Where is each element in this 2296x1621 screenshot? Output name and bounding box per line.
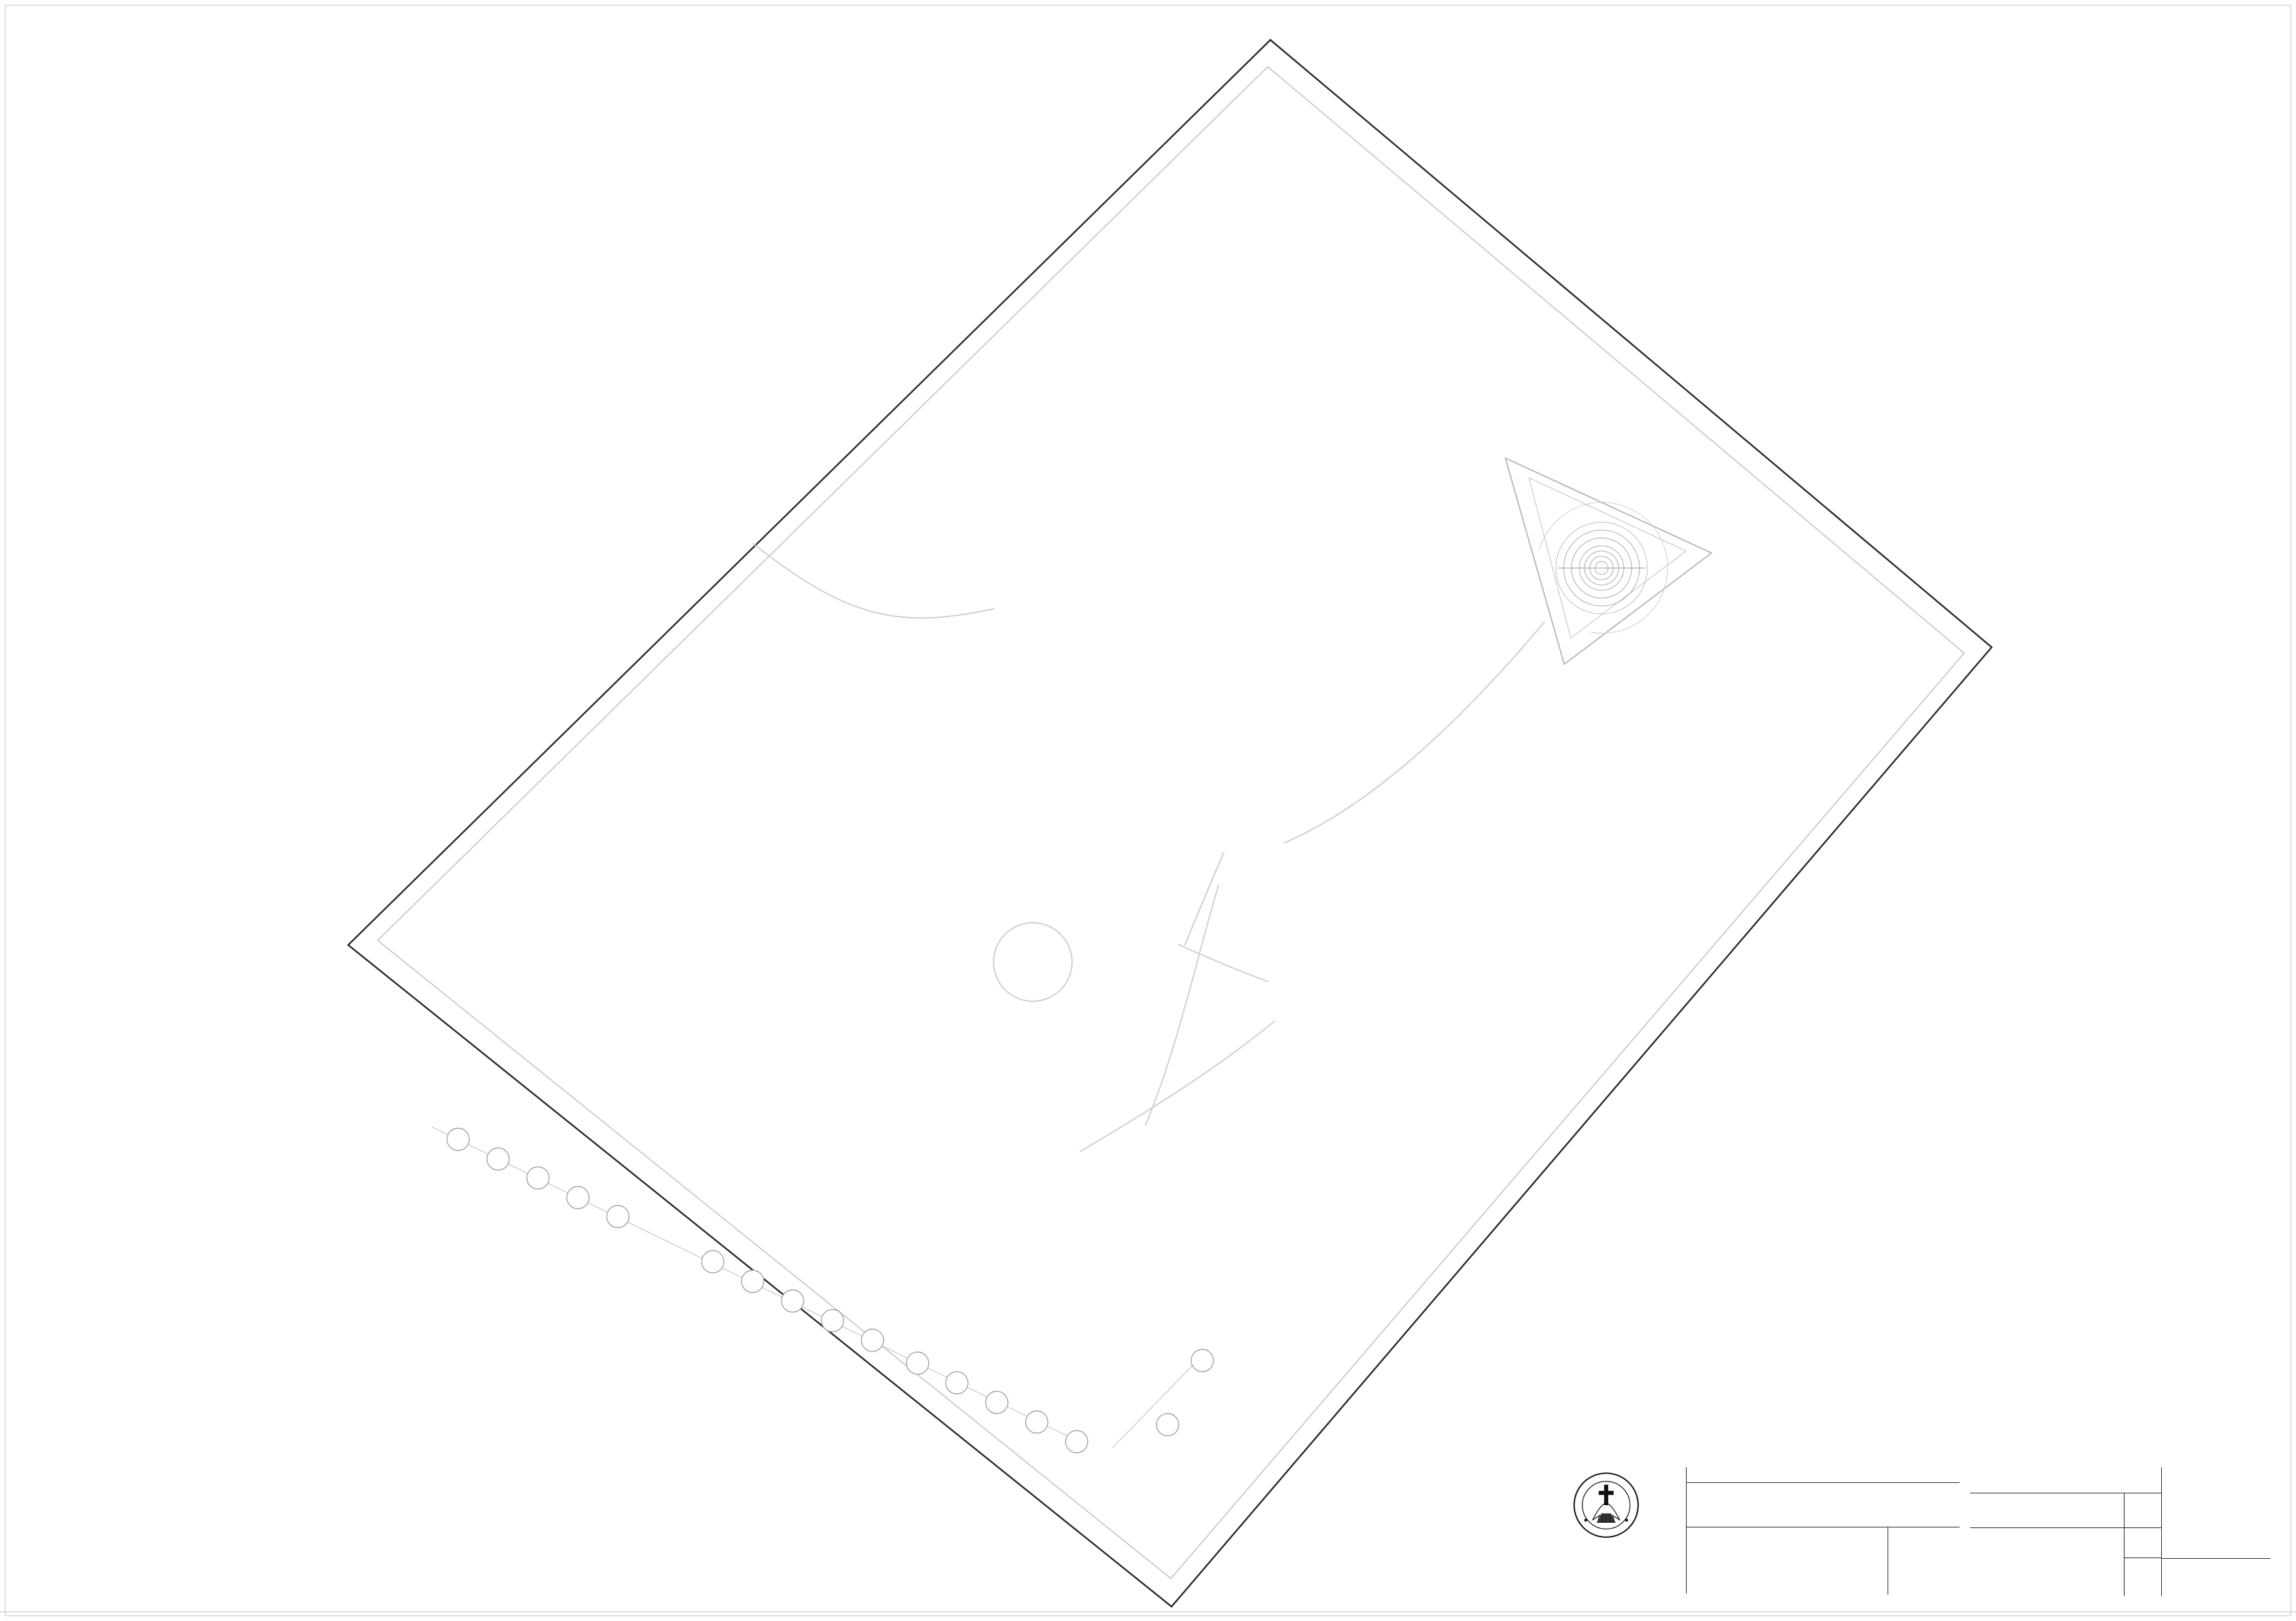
kelompok-cell <box>2124 1493 2162 1528</box>
header-cell <box>1687 1467 1960 1483</box>
title-block-left <box>1526 1467 1957 1594</box>
grid-bubble-circles <box>447 1128 1213 1453</box>
institution-cell <box>1526 1467 1687 1594</box>
cross-icon <box>1599 1485 1614 1505</box>
nrp-cell <box>1970 1493 2124 1528</box>
drawing-sheet <box>0 0 2296 1621</box>
site-sidewalk <box>378 67 1964 1578</box>
sheet-frame <box>5 5 2291 1616</box>
pengesahan-cell <box>2161 1467 2270 1558</box>
skala-cell <box>1888 1527 1960 1595</box>
site-plan-canvas <box>0 0 2296 1621</box>
mentor-cell <box>1970 1528 2124 1596</box>
fountain-plaza <box>1505 458 1712 664</box>
fountain-icon <box>1539 503 1668 633</box>
title-block <box>1526 1467 2269 1594</box>
jumlah-cell <box>2124 1558 2162 1596</box>
site-boundary <box>348 40 1992 1607</box>
internal-paths <box>753 543 1545 1152</box>
title-block-right <box>1970 1467 2269 1594</box>
judul-tugas-cell <box>1687 1483 1960 1527</box>
tanggal-cell <box>2161 1558 2270 1596</box>
judul-gambar-cell <box>1687 1527 1888 1595</box>
nama-cell <box>1970 1467 2161 1493</box>
lembar-cell <box>2124 1528 2162 1558</box>
petra-logo <box>1572 1471 1640 1539</box>
